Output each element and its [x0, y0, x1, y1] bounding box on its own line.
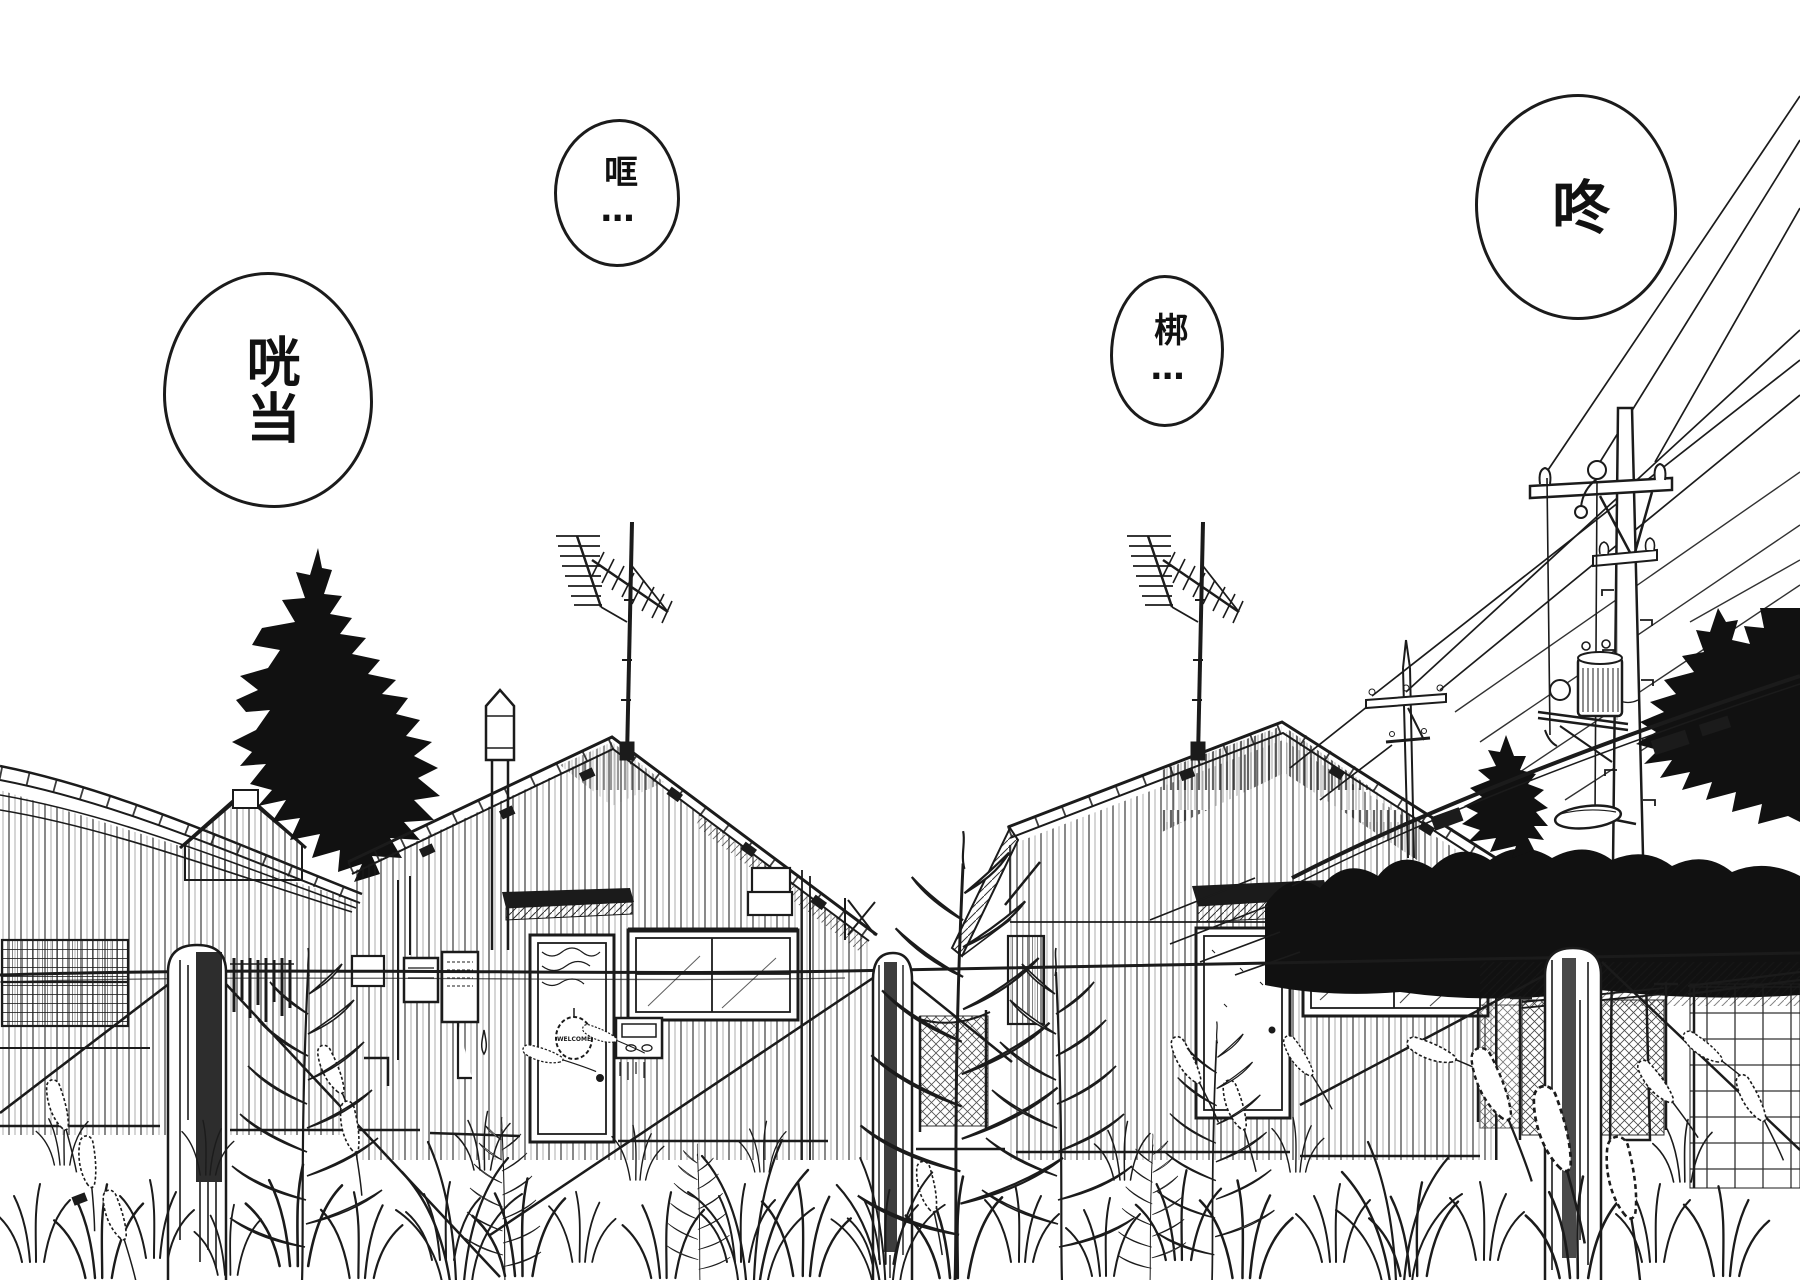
louver-window [2, 940, 128, 1026]
sfx-bubble-kuang: 哐… [554, 119, 680, 267]
wall-vent-box [748, 868, 792, 915]
sfx-text: 咣当 [240, 334, 296, 446]
welcome-sign-label: WELCOME [557, 1036, 591, 1043]
sfx-text: 咚 [1546, 177, 1606, 237]
chain-link-fence-middle [916, 1010, 990, 1132]
window-right [628, 930, 798, 1020]
manga-page: WELCOME [0, 0, 1800, 1280]
sfx-text: 哐… [599, 154, 634, 232]
door-awning [502, 888, 634, 920]
sfx-bubble-dong: 咚 [1475, 94, 1677, 320]
sfx-text: 梆… [1149, 312, 1184, 390]
